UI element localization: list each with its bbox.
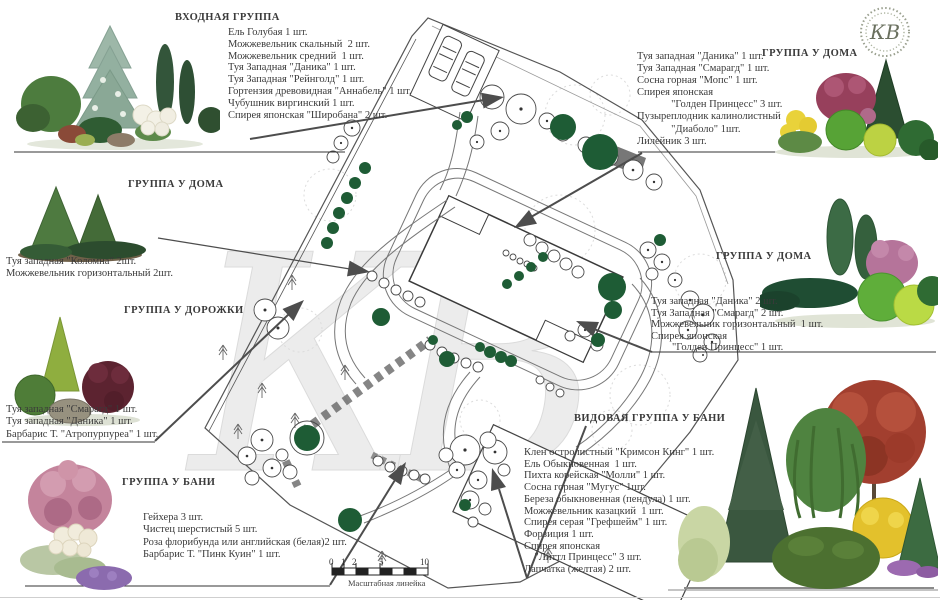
plant-list-item: "Голден Принцесс" 1 шт. [651, 342, 823, 354]
plant-list-item: Можжевельник средний 1 шт. [228, 51, 412, 63]
brand-logo: КВ [861, 8, 909, 56]
plant-list-item: Сосна горная "Мопс" 1 шт. [637, 75, 782, 87]
plant-list-item: Барбарис Т. "Атропурпуреа" 1 шт. [6, 429, 158, 441]
plant-list-item: Лапчатка (желтая) 2 шт. [524, 564, 714, 576]
plant-list-item: Форзиция 1 шт. [524, 529, 714, 541]
plant-list-item: Можжевельник горизонтальный 2шт. [6, 268, 173, 280]
logo-monogram: КВ [869, 20, 900, 44]
group-title-bath-specimen: ВИДОВАЯ ГРУППА У БАНИ [574, 413, 725, 424]
group-title-entrance: ВХОДНАЯ ГРУППА [175, 12, 280, 23]
bath-group-image [8, 458, 138, 594]
plant-list-bath: Гейхера 3 шт.Чистец шерстистый 5 шт.Роза… [143, 512, 347, 562]
plant-list-item: Спирея японская "Широбана" 2 шт. [228, 110, 412, 122]
plant-list-item: Гейхера 3 шт. [143, 512, 347, 524]
plant-list-item: Спирея японская [524, 541, 714, 553]
plant-list-item: Туя западная "Коломна" 2шт. [6, 256, 173, 268]
group-title-house-right: ГРУППА У ДОМА [716, 251, 812, 262]
plant-list-item: Туя западная "Даника" 1 шт. [6, 416, 158, 428]
plant-list-item: Береза обыкновенная (пендула) 1 шт. [524, 494, 714, 506]
group-title-bath: ГРУППА У БАНИ [122, 477, 215, 488]
scale-bar-label: Масштабная линейка [348, 578, 426, 588]
house-group-left-image [8, 183, 153, 265]
scale-bar: 0 1 2 5 10 Масштабная линейка [329, 557, 430, 588]
plant-list-item: Туя Западная "Даника" 1 шт. [228, 62, 412, 74]
plant-list-item: Чистец шерстистый 5 шт. [143, 524, 347, 536]
plant-list-item: "Литтл Принцесс" 3 шт. [524, 552, 714, 564]
plant-list-item: Пихта корейская "Молли" 1 шт. [524, 470, 714, 482]
plant-list-item: Туя западная "Смарагд" 1 шт. [6, 404, 158, 416]
plant-list-item: Туя Западная "Смарагд" 2 шт. [651, 308, 823, 320]
plant-list-item: Туя западная "Даника" 1 шт. [637, 51, 782, 63]
plant-list-item: Клен остролистный "Кримсон Кинг" 1 шт. [524, 447, 714, 459]
plant-list-item: Ель Обыкновенная 1 шт. [524, 459, 714, 471]
landscape-plan-sheet: КВ [0, 0, 940, 600]
sheet-bottom-rule [0, 597, 940, 598]
plant-list-item: Туя Западная "Рейнголд" 1 шт. [228, 74, 412, 86]
plant-list-item: Чубушник виргинский 1 шт. [228, 98, 412, 110]
entrance-group-image [15, 20, 220, 152]
bath-specimen-group-image [678, 360, 938, 594]
plant-list-item: Спирея японская [637, 87, 782, 99]
plant-list-item: Барбарис Т. "Пинк Куин" 1 шт. [143, 549, 347, 561]
group-title-path: ГРУППА У ДОРОЖКИ [124, 305, 244, 316]
plant-list-item: Спирея японская [651, 331, 823, 343]
plant-list-house-right: Туя западная "Даника" 2 шт.Туя Западная … [651, 296, 823, 354]
plant-list-bath-specimen: Клен остролистный "Кримсон Кинг" 1 шт.Ел… [524, 447, 714, 576]
plant-list-house-top-right: Туя западная "Даника" 1 шт.Туя Западная … [637, 51, 782, 148]
plant-list-item: Туя западная "Даника" 2 шт. [651, 296, 823, 308]
group-title-house-left: ГРУППА У ДОМА [128, 179, 224, 190]
plant-list-item: Лилейник 3 шт. [637, 136, 782, 148]
plant-list-item: Гортензия древовидная "Аннабель" 1 шт. [228, 86, 412, 98]
plant-list-item: Можжевельник горизонтальный 1 шт. [651, 319, 823, 331]
house-group-top-right-image [768, 58, 938, 160]
plant-list-item: Пузыреплодник калинолистный [637, 111, 782, 123]
plant-list-item: "Диаболо" 1шт. [637, 124, 782, 136]
plant-list-item: Туя Западная "Смарагд" 1 шт. [637, 63, 782, 75]
plant-list-item: Ель Голубая 1 шт. [228, 27, 412, 39]
plant-list-item: Можжевельник казацкий 1 шт. [524, 506, 714, 518]
plant-list-entrance: Ель Голубая 1 шт.Можжевельник скальный 2… [228, 27, 412, 121]
plant-list-house-left: Туя западная "Коломна" 2шт.Можжевельник … [6, 256, 173, 281]
plant-list-item: "Голден Принцесс" 3 шт. [637, 99, 782, 111]
plant-list-path: Туя западная "Смарагд" 1 шт.Туя западная… [6, 404, 158, 441]
plant-list-item: Сосна горная "Мугус" 1шт. [524, 482, 714, 494]
plant-list-item: Можжевельник скальный 2 шт. [228, 39, 412, 51]
plant-list-item: Спирея серая "Грефшейм" 1 шт. [524, 517, 714, 529]
plant-list-item: Роза флорибунда или английская (белая)2 … [143, 537, 347, 549]
